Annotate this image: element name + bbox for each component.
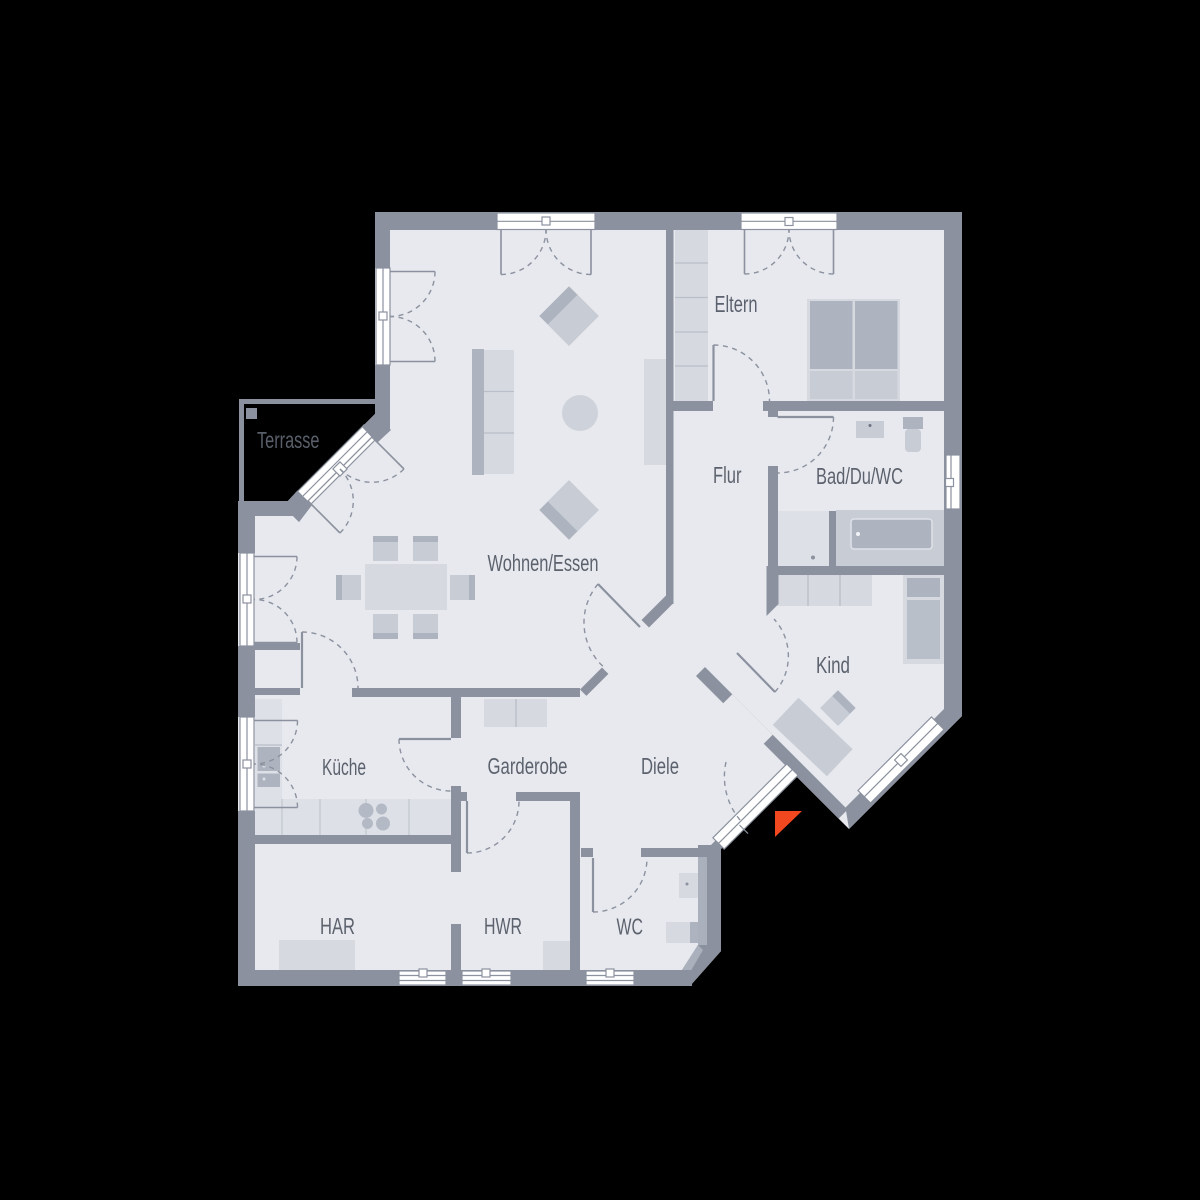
svg-text:Garderobe: Garderobe bbox=[488, 753, 568, 779]
svg-text:WC: WC bbox=[617, 913, 644, 939]
svg-text:Diele: Diele bbox=[641, 753, 679, 779]
svg-text:Küche: Küche bbox=[322, 754, 366, 780]
svg-text:HWR: HWR bbox=[484, 913, 522, 939]
svg-text:Wohnen/Essen: Wohnen/Essen bbox=[488, 550, 599, 576]
svg-text:Kind: Kind bbox=[816, 652, 850, 678]
svg-text:Flur: Flur bbox=[713, 462, 742, 488]
svg-text:HAR: HAR bbox=[320, 913, 355, 939]
svg-text:Terrasse: Terrasse bbox=[257, 427, 320, 453]
svg-text:Eltern: Eltern bbox=[715, 291, 758, 317]
svg-text:Bad/Du/WC: Bad/Du/WC bbox=[816, 463, 903, 489]
